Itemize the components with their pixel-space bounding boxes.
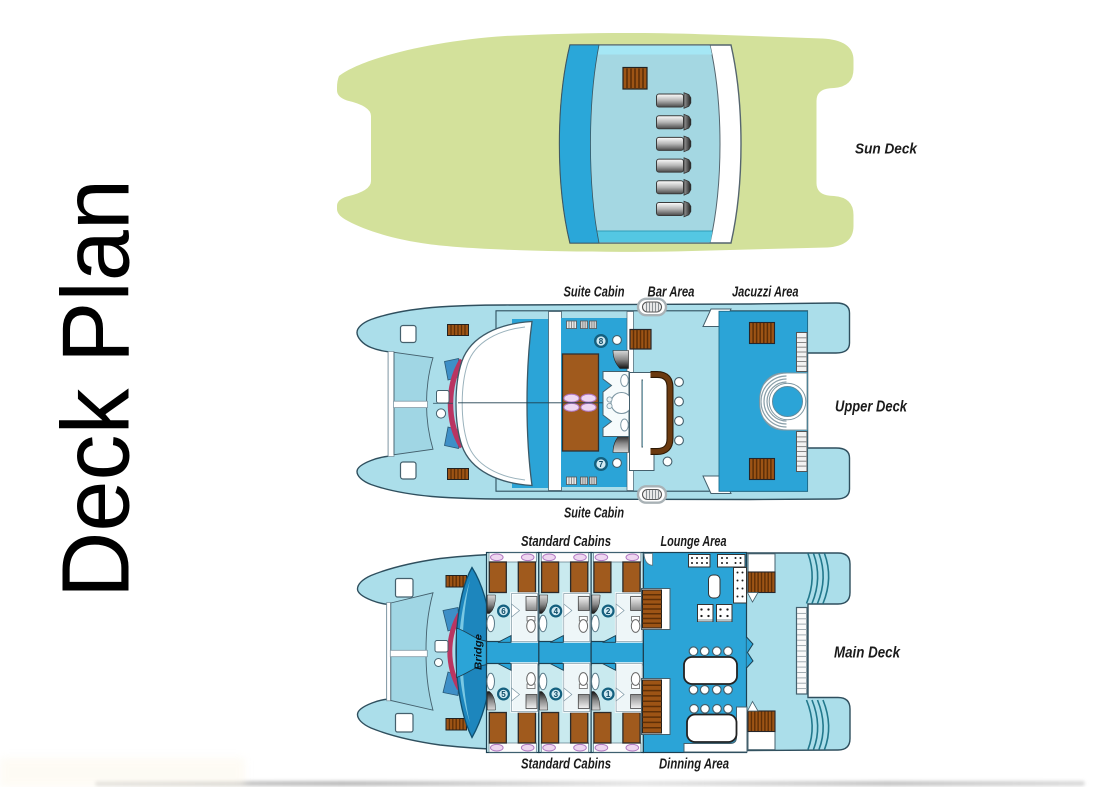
- svg-text:6: 6: [501, 607, 506, 616]
- svg-text:1: 1: [606, 690, 611, 699]
- svg-text:Suite Cabin: Suite Cabin: [564, 285, 625, 301]
- svg-text:Main Deck: Main Deck: [834, 645, 901, 662]
- svg-text:Lounge Area: Lounge Area: [661, 534, 727, 550]
- svg-text:2: 2: [606, 607, 611, 616]
- svg-text:Bar Area: Bar Area: [648, 285, 695, 301]
- svg-text:Sun Deck: Sun Deck: [855, 142, 918, 158]
- svg-text:3: 3: [554, 690, 559, 699]
- svg-text:7: 7: [599, 460, 604, 469]
- svg-text:Standard Cabins: Standard Cabins: [521, 757, 611, 773]
- svg-text:Jacuzzi Area: Jacuzzi Area: [732, 285, 799, 301]
- svg-text:8: 8: [599, 337, 604, 346]
- svg-text:Deck Plan: Deck Plan: [43, 179, 150, 598]
- svg-text:4: 4: [554, 607, 559, 616]
- svg-text:Standard Cabins: Standard Cabins: [521, 534, 611, 550]
- svg-text:Suite Cabin: Suite Cabin: [564, 506, 624, 522]
- svg-text:Dinning Area: Dinning Area: [659, 757, 729, 773]
- svg-text:5: 5: [501, 690, 506, 699]
- svg-text:Bridge: Bridge: [473, 634, 485, 670]
- svg-text:Upper Deck: Upper Deck: [835, 399, 908, 416]
